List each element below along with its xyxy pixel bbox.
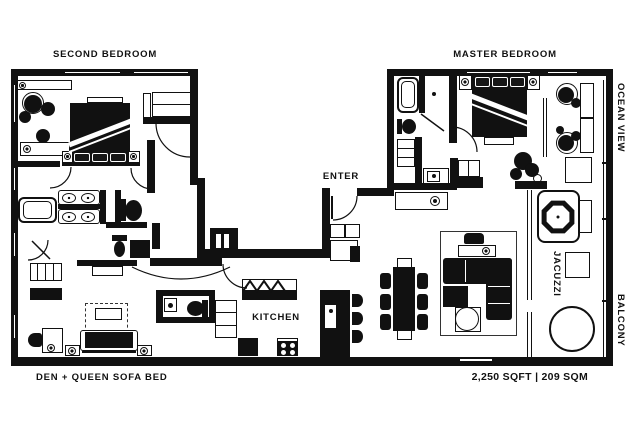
pantry-shelf-line: [215, 312, 237, 313]
wall-right: [606, 69, 613, 366]
desk-lamp-icon: [23, 145, 31, 153]
pillow: [492, 77, 508, 87]
desk-lamp-icon: [47, 344, 55, 352]
headboard-base-line: [62, 164, 140, 166]
wardrobe-slim: [143, 93, 151, 120]
den-chair: [28, 333, 42, 347]
pillow: [92, 153, 108, 162]
dining-chair: [380, 273, 391, 289]
second-bed: [70, 103, 130, 152]
label-enter: ENTER: [316, 171, 366, 182]
balcony-door-threshold: [460, 359, 492, 361]
ottoman: [443, 286, 468, 307]
wall-leftwing-right-lower: [197, 178, 205, 258]
burner-icon: [290, 350, 295, 355]
wall-hall-vertical: [147, 140, 155, 193]
louver-closet: [30, 263, 62, 281]
pillow: [110, 153, 126, 162]
bed-end-bench: [484, 137, 514, 145]
balcony-door-gap: [526, 300, 533, 312]
floorplan: SECOND BEDROOM MASTER BEDROOM ENTER KITC…: [0, 0, 640, 427]
balcony-bench-2: [580, 118, 594, 153]
nightstand-lamp-icon: [529, 78, 537, 86]
coffee-table-round: [455, 307, 479, 331]
sofa-cushion-line: [488, 286, 510, 287]
speaker-icon: [68, 347, 76, 355]
glass-partition-line: [543, 98, 544, 157]
toilet-icon: [114, 241, 125, 257]
label-kitchen: KITCHEN: [246, 312, 306, 323]
mullion-tick-2: [602, 218, 607, 220]
reading-table: [510, 168, 522, 180]
tv-console: [458, 245, 496, 257]
balcony-table-small: [556, 126, 564, 134]
window-left-4: [13, 315, 16, 338]
wall-hall-east: [152, 223, 160, 249]
lounge-ottoman: [41, 102, 55, 116]
burner-icon: [281, 343, 286, 348]
balcony-table-rect: [565, 157, 592, 183]
sink-icon: [81, 193, 95, 203]
sink-icon: [62, 212, 76, 222]
label-jacuzzi: JACUZZI: [551, 251, 562, 301]
faucet-icon: [168, 303, 173, 308]
wall-entry-side: [322, 188, 330, 258]
bar-stool: [352, 312, 363, 325]
wall-powder-top: [156, 290, 215, 296]
faucet-icon: [432, 174, 436, 178]
wall-master-divider: [449, 72, 457, 143]
wall-bath-divider: [419, 72, 425, 113]
burner-icon: [290, 343, 295, 348]
shaft-louver-2: [224, 234, 229, 248]
bar-stool: [352, 294, 363, 307]
label-area: 2,250 SQFT | 209 SQM: [420, 371, 588, 383]
dining-chair: [417, 314, 428, 330]
door-arc-second-bedroom: [156, 123, 190, 157]
wall-dresser-base: [453, 177, 483, 188]
window-top-left-1: [65, 71, 120, 74]
master-dresser: [458, 160, 480, 177]
window-left-1: [13, 85, 16, 122]
bar-stool: [352, 330, 363, 343]
dining-chair-end: [397, 258, 412, 268]
dining-table: [393, 267, 415, 331]
shoe-cabinet-1: [330, 224, 345, 238]
bowl-center-icon: [433, 199, 437, 203]
dining-chair-end: [397, 330, 412, 340]
door-arc-entry: [333, 196, 357, 220]
wall-masterbath-south: [390, 183, 457, 190]
shaft-louver-1: [216, 234, 221, 248]
toilet-icon: [125, 200, 142, 221]
faucet-icon: [329, 309, 333, 313]
pillow: [74, 153, 90, 162]
sofa-base-line: [82, 351, 136, 353]
nightstand-lamp-icon: [130, 153, 137, 160]
shower-door-diagonal-master: [421, 114, 444, 131]
wall-below-wc1: [106, 222, 147, 228]
sink-icon: [62, 193, 76, 203]
shower-head-icon: [432, 92, 436, 96]
kitchen-island-base: [242, 290, 297, 300]
sectional-sofa-right: [486, 258, 512, 320]
balcony-glass-line: [531, 190, 532, 357]
console-lamp-icon: [19, 82, 26, 89]
bathtub-inner: [23, 201, 52, 219]
shower-door-diagonal-2: [32, 241, 50, 259]
entry-closet-wall: [350, 246, 360, 262]
sofa-cushion-line: [488, 303, 510, 304]
reading-ottoman: [525, 163, 539, 177]
toilet-icon: [187, 301, 204, 316]
tv: [464, 233, 484, 244]
wall-leftwing-right-upper: [190, 69, 198, 185]
door-arc-bath2: [28, 240, 48, 260]
balcony-round-table: [549, 306, 595, 352]
shoe-cabinet-2: [345, 224, 360, 238]
wall-wc2-block: [130, 240, 150, 258]
sofa-bed-pillow: [95, 308, 122, 320]
speaker-icon: [140, 347, 148, 355]
mullion-tick-1: [602, 162, 607, 164]
window-top-left-2: [134, 71, 188, 74]
master-bathtub-inner: [401, 81, 415, 108]
hall-arch: [132, 267, 230, 279]
media-dial-icon: [482, 247, 490, 255]
label-master-bedroom: MASTER BEDROOM: [440, 49, 570, 60]
window-top-right-2: [548, 71, 577, 74]
wall-hall-south: [150, 258, 222, 266]
dining-chair: [380, 294, 391, 310]
wall-den-closet: [30, 288, 62, 300]
pantry-shelf-line: [215, 325, 237, 326]
louver-line: [37, 263, 38, 281]
mullion-tick-3: [602, 300, 607, 302]
dresser-line: [468, 160, 469, 177]
fridge-pantry: [215, 300, 237, 338]
balcony-square-table: [565, 252, 590, 278]
label-ocean-view: OCEAN VIEW: [615, 83, 626, 158]
kitchen-sink: [324, 304, 337, 329]
window-left-3: [13, 233, 16, 256]
burner-icon: [281, 350, 286, 355]
dishwasher: [238, 338, 258, 356]
shelf-line: [397, 157, 415, 158]
glass-partition-line: [546, 98, 547, 157]
wall-vanity-right: [100, 190, 106, 224]
louver-line: [45, 263, 46, 281]
sink-icon: [81, 212, 95, 222]
shelf-line: [397, 148, 415, 149]
label-balcony: BALCONY: [615, 294, 626, 349]
dining-chair: [417, 273, 428, 289]
jacuzzi-deck: [537, 190, 580, 243]
nightstand-lamp-icon: [64, 153, 71, 160]
label-second-bedroom: SECOND BEDROOM: [40, 49, 170, 60]
balcony-glass-line: [527, 190, 528, 357]
foyer-console: [395, 192, 448, 210]
wall-bottom: [11, 357, 613, 366]
sofa-cushion-line: [465, 260, 466, 282]
dining-chair: [417, 294, 428, 310]
toilet-icon: [402, 119, 416, 134]
wall-closet-bar: [143, 117, 191, 124]
pillow: [510, 77, 525, 87]
lounge-side-table: [19, 111, 31, 123]
master-closet-shelves: [397, 139, 415, 167]
dressing-console: [92, 266, 123, 276]
nightstand-lamp-icon: [461, 78, 469, 86]
door-arc-bath1: [50, 167, 71, 188]
desk-chair: [36, 129, 50, 143]
wall-below-desk: [11, 161, 60, 167]
label-den: DEN + QUEEN SOFA BED: [36, 372, 168, 383]
wall-master-left: [387, 69, 394, 196]
stove-controls: [278, 339, 297, 341]
wall-powder-bottom: [156, 317, 215, 323]
louver-line: [53, 263, 54, 281]
dining-chair: [380, 314, 391, 330]
queen-sofa: [85, 332, 133, 348]
wall-master-south: [515, 181, 547, 189]
pillow: [475, 77, 490, 87]
window-left-2: [13, 168, 16, 190]
balcony-bench-1: [580, 83, 594, 118]
closet-shelf-line: [152, 104, 191, 105]
